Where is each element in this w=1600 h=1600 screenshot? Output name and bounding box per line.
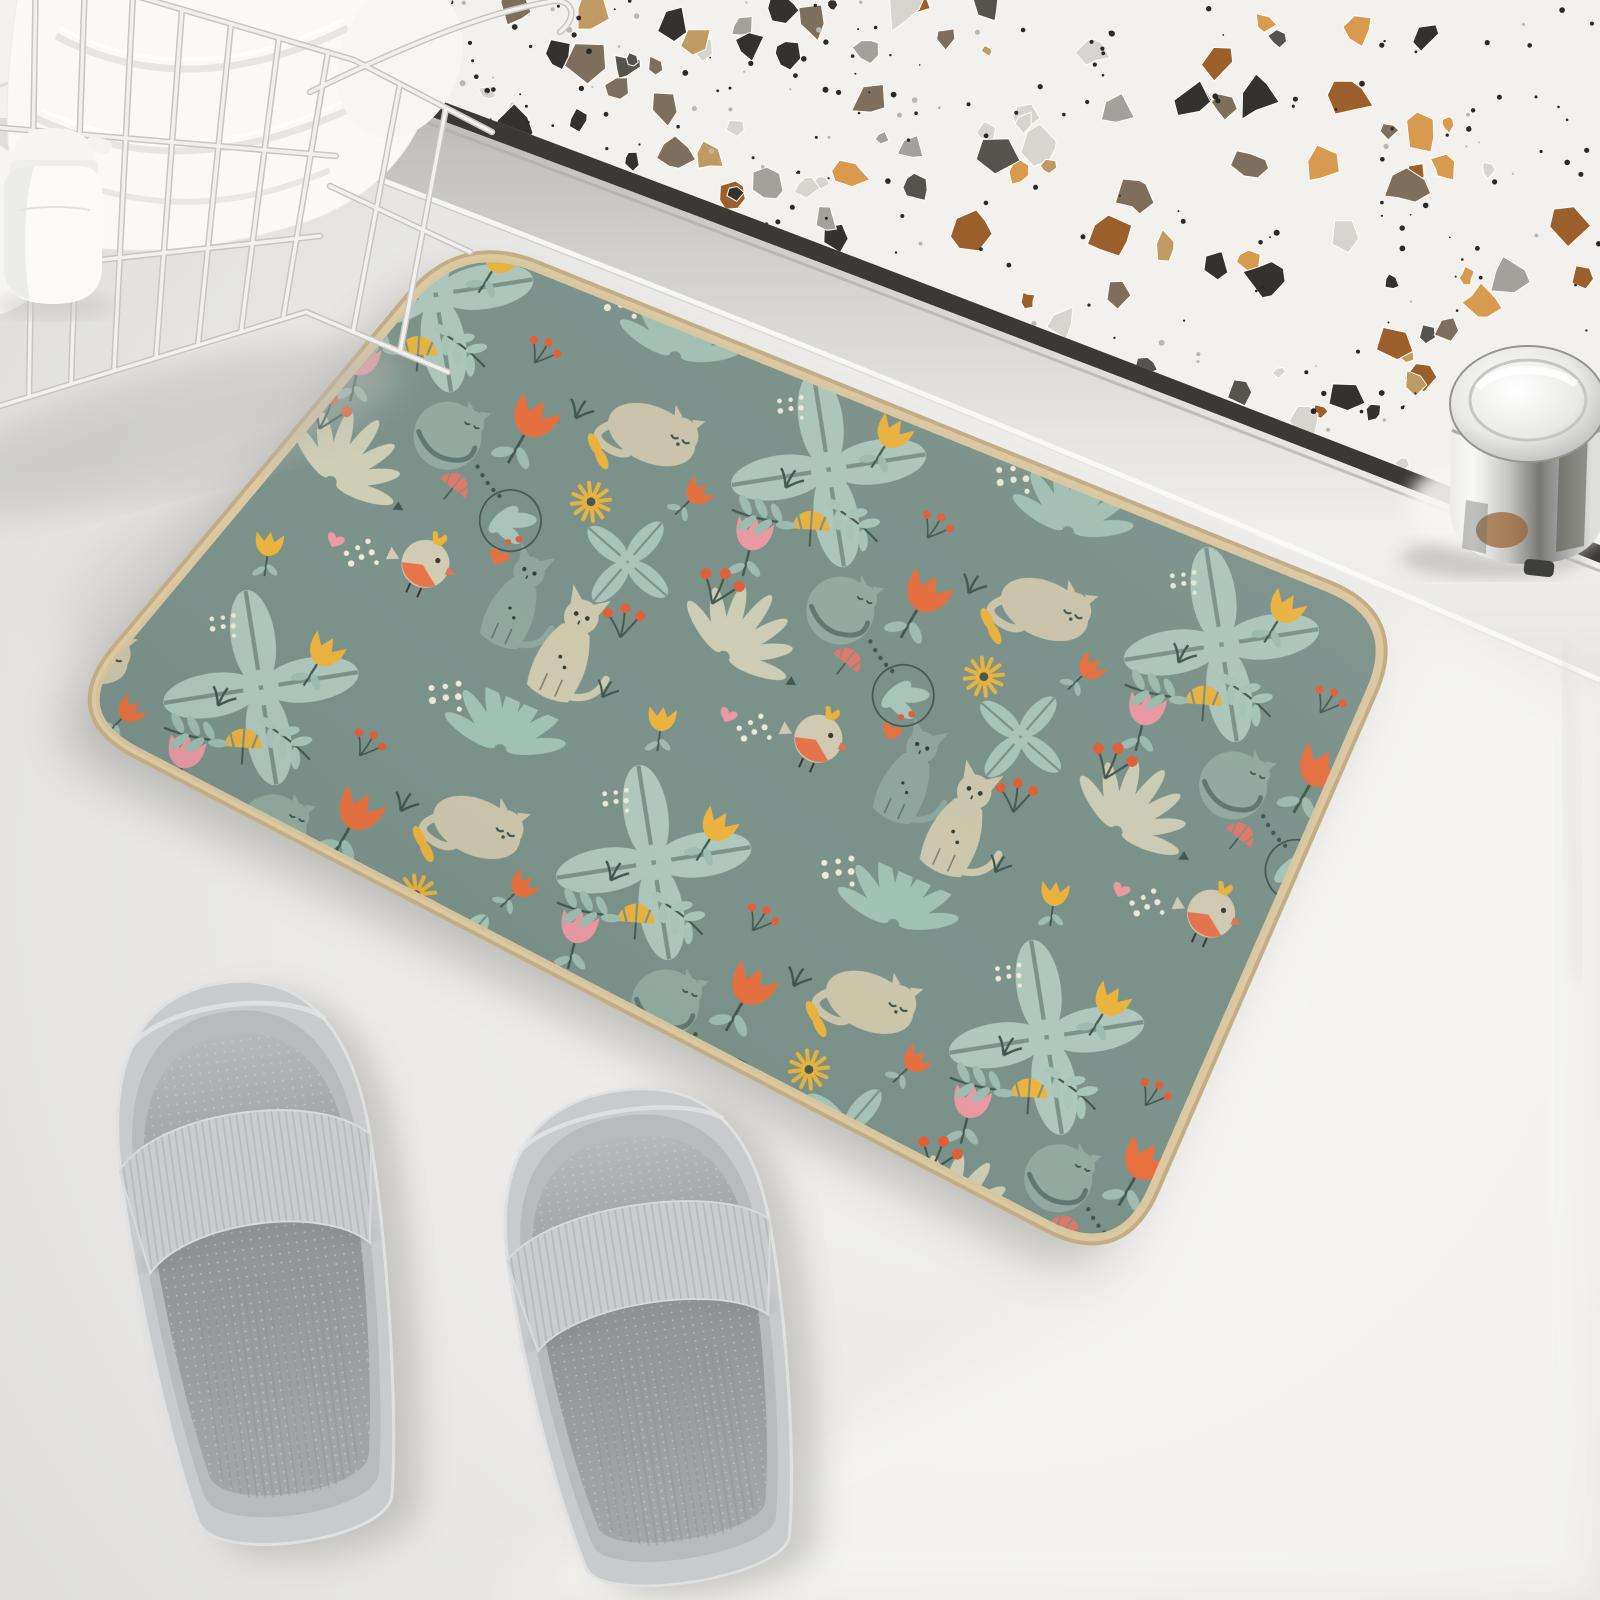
slipper-right-ribs xyxy=(577,1333,764,1553)
knob-tab xyxy=(1523,558,1555,577)
bathroom-scene xyxy=(0,0,1600,1600)
knob-top xyxy=(1450,346,1600,462)
knob-reflection-grey xyxy=(1462,500,1488,554)
